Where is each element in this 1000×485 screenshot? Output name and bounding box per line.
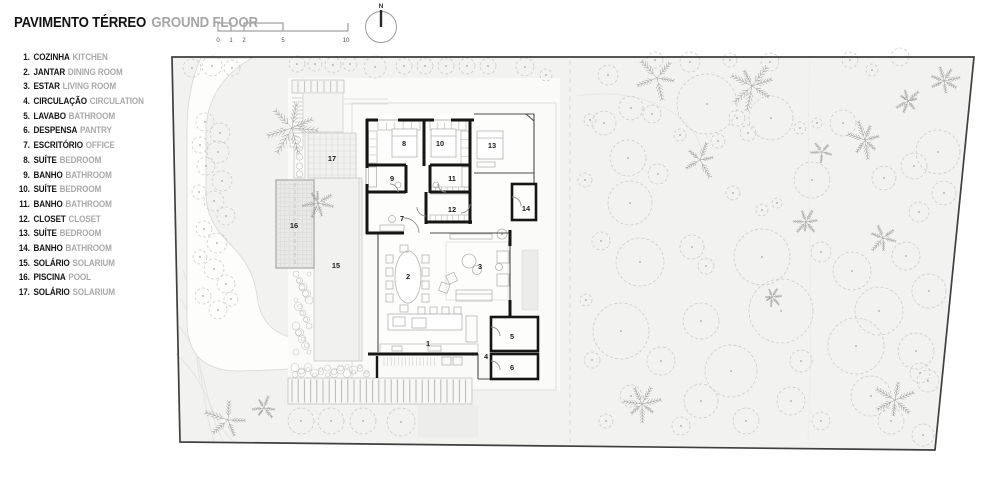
tree-trunk <box>820 420 822 422</box>
tree-trunk <box>630 107 632 109</box>
room-label-8: 8 <box>402 139 406 148</box>
legend-item-13: 13.SUÍTEBEDROOM <box>16 228 144 243</box>
tree-trunk <box>660 360 662 362</box>
entry-canopy <box>292 80 344 93</box>
legend-num: 13. <box>16 228 30 238</box>
tree-trunk <box>584 179 586 181</box>
legend-item-2: 2.JANTARDINING ROOM <box>16 67 144 82</box>
legend-pt: ESCRITÓRIO <box>33 140 82 150</box>
tree-trunk <box>851 270 853 272</box>
legend-num: 6. <box>16 125 30 135</box>
legend-num: 4. <box>16 96 30 106</box>
tree-trunk <box>745 420 747 422</box>
tree-trunk <box>213 200 215 202</box>
room-legend: 1.COZINHAKITCHEN2.JANTARDINING ROOM3.EST… <box>16 52 144 302</box>
bath14-walls <box>512 184 536 220</box>
legend-pt: COZINHA <box>33 52 69 62</box>
legend-num: 3. <box>16 81 30 91</box>
legend-pt: PISCINA <box>33 272 65 282</box>
legend-en: BEDROOM <box>60 184 102 194</box>
legend-item-6: 6.DESPENSAPANTRY <box>16 125 144 140</box>
pergola <box>288 378 472 404</box>
tree-trunk <box>689 61 691 63</box>
tree-trunk <box>487 65 489 67</box>
legend-item-8: 8.SUÍTEBEDROOM <box>16 155 144 170</box>
tree-trunk <box>770 117 772 119</box>
tree-trunk <box>600 240 602 242</box>
legend-pt: LAVABO <box>33 111 65 121</box>
tree-trunk <box>217 151 219 153</box>
legend-pt: CIRCULAÇÃO <box>33 96 86 106</box>
tree-trunk <box>883 177 885 179</box>
tree-trunk <box>231 67 233 69</box>
legend-item-16: 16.PISCINAPOOL <box>16 272 144 287</box>
room-label-12: 12 <box>448 205 456 214</box>
legend-item-1: 1.COZINHAKITCHEN <box>16 52 144 67</box>
page-title: PAVIMENTO TÉRREOGROUND FLOOR <box>14 14 258 31</box>
tree-trunk <box>219 132 221 134</box>
tree-trunk <box>204 121 206 123</box>
tree-trunk <box>680 425 682 427</box>
legend-item-9: 9.BANHOBATHROOM <box>16 170 144 185</box>
room-label-15: 15 <box>332 261 340 270</box>
legend-en: KITCHEN <box>72 52 107 62</box>
tree-trunk <box>918 211 920 213</box>
room-label-1: 1 <box>426 339 430 348</box>
lavabo-walls <box>491 317 538 351</box>
tree-trunk <box>928 290 930 292</box>
legend-num: 10. <box>16 184 30 194</box>
legend-en: CIRCULATION <box>90 96 144 106</box>
room-label-7: 7 <box>400 214 404 223</box>
legend-pt: SOLÁRIO <box>33 258 69 268</box>
tree-trunk <box>761 256 763 258</box>
legend-en: SOLARIUM <box>72 258 114 268</box>
legend-en: BEDROOM <box>60 155 102 165</box>
room-label-16: 16 <box>290 221 298 230</box>
legend-item-3: 3.ESTARLIVING ROOM <box>16 81 144 96</box>
tree-trunk <box>374 66 376 68</box>
tree-trunk <box>607 74 609 76</box>
tree-trunk <box>205 165 207 167</box>
legend-num: 16. <box>16 272 30 282</box>
tree-trunk <box>905 255 907 257</box>
legend-pt: DESPENSA <box>33 125 77 135</box>
entry-court <box>303 93 343 132</box>
tree-trunk <box>585 299 587 301</box>
tree-trunk <box>769 61 771 63</box>
legend-num: 1. <box>16 52 30 62</box>
room-label-11: 11 <box>448 174 456 183</box>
legend-pt: BANHO <box>33 243 62 253</box>
tree-trunk <box>589 119 591 121</box>
legend-num: 17. <box>16 287 30 297</box>
room-label-3: 3 <box>478 262 482 271</box>
scale-tick-1: 1 <box>229 38 233 44</box>
room-label-6: 6 <box>510 363 514 372</box>
tree-trunk <box>799 127 801 129</box>
tree-trunk <box>230 298 232 300</box>
tree-trunk <box>878 310 880 312</box>
tree-trunk <box>736 117 738 119</box>
tree-trunk <box>780 310 782 312</box>
legend-num: 12. <box>16 214 30 224</box>
tree-trunk <box>300 420 302 422</box>
legend-pt: BANHO <box>33 170 62 180</box>
legend-en: PANTRY <box>80 125 112 135</box>
tree-trunk <box>216 242 218 244</box>
tree-trunk <box>915 350 917 352</box>
legend-en: BEDROOM <box>60 228 102 238</box>
tree-trunk <box>362 420 364 422</box>
room-label-13: 13 <box>488 141 496 150</box>
tree-trunk <box>332 64 334 66</box>
pantry-walls <box>491 354 538 379</box>
tree-trunk <box>657 173 659 175</box>
tree-trunk <box>890 420 892 422</box>
legend-num: 14. <box>16 243 30 253</box>
tree-trunk <box>314 63 316 65</box>
tree-trunk <box>776 202 778 204</box>
tree-trunk <box>403 65 405 67</box>
tree-trunk <box>937 151 939 153</box>
tree-trunk <box>221 180 223 182</box>
tree-trunk <box>213 268 215 270</box>
legend-en: LIVING ROOM <box>63 81 116 91</box>
north-label: N <box>379 3 384 10</box>
legend-item-14: 14.BANHOBATHROOM <box>16 243 144 258</box>
tree-trunk <box>630 395 632 397</box>
tree-trunk <box>330 420 332 422</box>
legend-item-15: 15.SOLÁRIOSOLARIUM <box>16 258 144 273</box>
north-arrow: N <box>366 3 397 43</box>
room-label-2: 2 <box>406 272 410 281</box>
tree-trunk <box>211 65 213 67</box>
tree-trunk <box>445 65 447 67</box>
tree-trunk <box>629 202 631 204</box>
legend-num: 2. <box>16 67 30 77</box>
legend-pt: ESTAR <box>33 81 59 91</box>
tree-trunk <box>927 380 929 382</box>
tree-trunk <box>691 246 693 248</box>
tree-trunk <box>466 65 468 67</box>
tree-trunk <box>761 209 763 211</box>
tree-trunk <box>225 215 227 217</box>
tree-trunk <box>639 261 641 263</box>
tree-trunk <box>603 122 605 124</box>
tree-trunk <box>400 421 402 423</box>
tree-trunk <box>943 192 945 194</box>
legend-num: 11. <box>16 199 30 209</box>
lawn-patch <box>418 405 478 438</box>
title-english: GROUND FLOOR <box>151 14 257 31</box>
tree-trunk <box>732 192 734 194</box>
tree-trunk <box>424 65 426 67</box>
tree-trunk <box>849 59 851 61</box>
legend-pt: SUÍTE <box>33 184 56 194</box>
tree-trunk <box>591 359 593 361</box>
room-label-17: 17 <box>328 154 336 163</box>
tree-trunk <box>199 144 201 146</box>
legend-item-4: 4.CIRCULAÇÃOCIRCULATION <box>16 96 144 111</box>
legend-en: OFFICE <box>86 140 115 150</box>
tree-trunk <box>871 69 873 71</box>
legend-item-10: 10.SUÍTEBEDROOM <box>16 184 144 199</box>
tree-trunk <box>820 251 822 253</box>
tree-trunk <box>524 66 526 68</box>
tree-trunk <box>545 74 547 76</box>
room-label-14: 14 <box>522 204 531 213</box>
legend-item-17: 17.SOLÁRIOSOLARIUM <box>16 287 144 302</box>
title-portuguese: PAVIMENTO TÉRREO <box>14 14 146 31</box>
legend-pt: BANHO <box>33 199 62 209</box>
room-label-5: 5 <box>510 332 514 341</box>
tree-trunk <box>198 191 200 193</box>
legend-num: 15. <box>16 258 30 268</box>
legend-pt: SOLÁRIO <box>33 287 69 297</box>
tree-trunk <box>679 134 681 136</box>
tree-trunk <box>730 370 732 372</box>
scale-tick-2: 2 <box>242 38 246 44</box>
planter-hedge <box>522 250 538 310</box>
legend-num: 9. <box>16 170 30 180</box>
tree-trunk <box>296 63 298 65</box>
legend-en: DINING ROOM <box>68 67 123 77</box>
tree-trunk <box>203 228 205 230</box>
tree-trunk <box>855 345 857 347</box>
tree-trunk <box>705 265 707 267</box>
legend-item-12: 12.CLOSETCLOSET <box>16 214 144 229</box>
legend-pt: SUÍTE <box>33 228 56 238</box>
tree-trunk <box>842 122 844 124</box>
tree-trunk <box>919 372 921 374</box>
tree-trunk <box>225 283 227 285</box>
tree-trunk <box>747 132 749 134</box>
legend-en: BATHROOM <box>69 111 115 121</box>
room-label-10: 10 <box>436 139 444 148</box>
legend-num: 5. <box>16 111 30 121</box>
legend-en: SOLARIUM <box>72 287 114 297</box>
scale-tick-5: 5 <box>281 38 285 44</box>
site-plan-drawing: 1234567891011121314151617 0 1 2 5 10 N <box>0 0 1000 485</box>
tree-trunk <box>627 157 629 159</box>
legend-pt: CLOSET <box>33 214 65 224</box>
tree-trunk <box>870 395 872 397</box>
tree-trunk <box>800 360 802 362</box>
room-label-9: 9 <box>390 174 394 183</box>
tree-trunk <box>191 67 193 69</box>
legend-item-11: 11.BANHOBATHROOM <box>16 199 144 214</box>
legend-item-7: 7.ESCRITÓRIOOFFICE <box>16 140 144 155</box>
tree-trunk <box>605 420 607 422</box>
tree-trunk <box>790 400 792 402</box>
tree-trunk <box>816 122 818 124</box>
legend-en: BATHROOM <box>65 199 111 209</box>
legend-pt: JANTAR <box>33 67 65 77</box>
legend-num: 7. <box>16 140 30 150</box>
tree-trunk <box>729 59 731 61</box>
legend-pt: SUÍTE <box>33 155 56 165</box>
tree-trunk <box>217 309 219 311</box>
tree-trunk <box>651 113 653 115</box>
tree-trunk <box>199 256 201 258</box>
legend-en: BATHROOM <box>65 170 111 180</box>
tree-trunk <box>620 330 622 332</box>
tree-trunk <box>717 140 719 142</box>
floor-plan-page: 1234567891011121314151617 0 1 2 5 10 N P… <box>0 0 1000 485</box>
tree-trunk <box>700 400 702 402</box>
scale-tick-0: 0 <box>216 38 220 44</box>
legend-num: 8. <box>16 155 30 165</box>
scale-tick-10: 10 <box>343 38 350 44</box>
tree-trunk <box>349 63 351 65</box>
tree-trunk <box>202 295 204 297</box>
tree-trunk <box>922 434 924 436</box>
tree-trunk <box>700 320 702 322</box>
legend-item-5: 5.LAVABOBATHROOM <box>16 111 144 126</box>
tree-trunk <box>706 103 708 105</box>
legend-en: POOL <box>68 272 91 282</box>
tree-trunk <box>811 179 813 181</box>
tree-trunk <box>654 59 656 61</box>
legend-en: CLOSET <box>69 214 101 224</box>
tree-trunk <box>913 165 915 167</box>
legend-en: BATHROOM <box>65 243 111 253</box>
